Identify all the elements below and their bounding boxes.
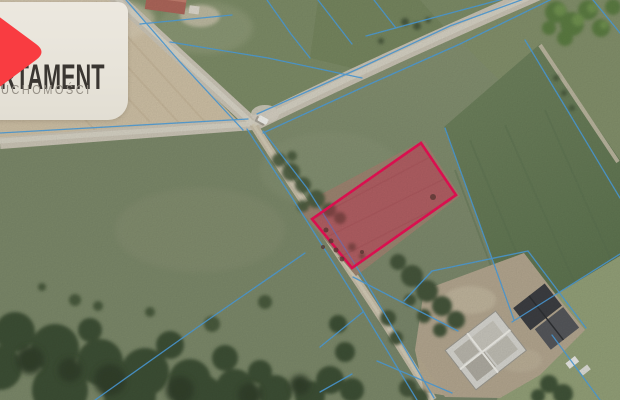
listing-photo: RTAMENT UCHOMOŚCI <box>0 0 620 400</box>
arrow-right-icon <box>0 0 62 110</box>
